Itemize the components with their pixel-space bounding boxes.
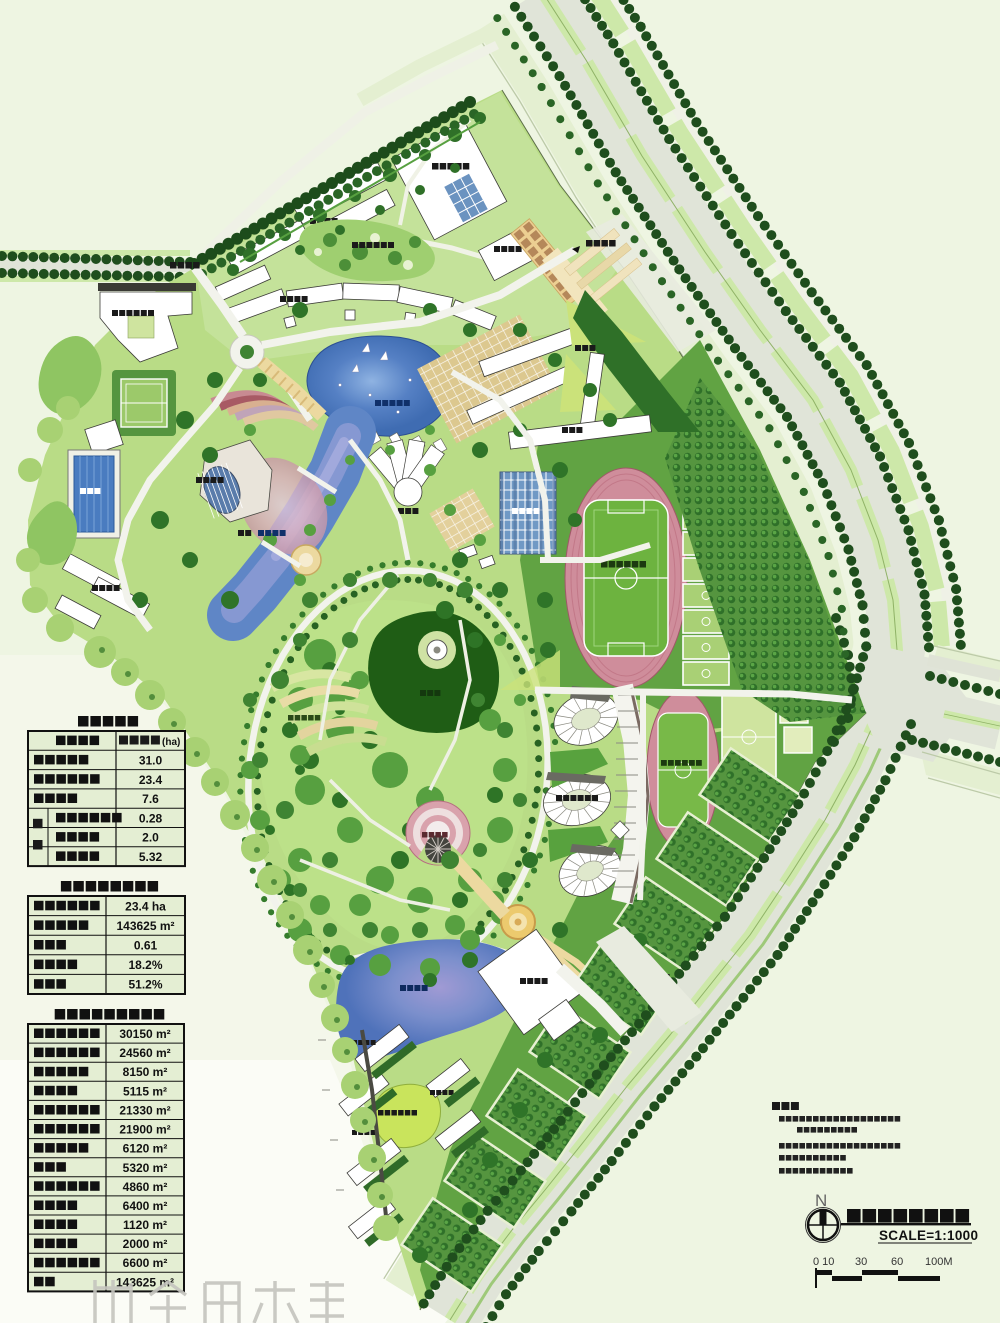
svg-text:1120 m²: 1120 m² [123,1218,167,1232]
svg-text:31.0: 31.0 [139,753,163,767]
svg-text:0.61: 0.61 [134,939,158,953]
svg-text:60: 60 [891,1256,903,1268]
svg-text:8150 m²: 8150 m² [123,1065,168,1079]
svg-text:6120 m²: 6120 m² [123,1142,168,1156]
svg-text:0.28: 0.28 [139,811,163,825]
svg-text:30150 m²: 30150 m² [119,1027,170,1041]
svg-text:100M: 100M [925,1256,953,1268]
svg-text:0 10: 0 10 [813,1256,834,1268]
svg-text:2.0: 2.0 [142,831,159,845]
svg-text:5320 m²: 5320 m² [123,1161,168,1175]
svg-text:51.2%: 51.2% [128,978,162,992]
svg-text:7.6: 7.6 [142,792,159,806]
svg-text:21900 m²: 21900 m² [119,1123,170,1137]
svg-text:5115 m²: 5115 m² [123,1084,167,1098]
svg-text:2000 m²: 2000 m² [123,1237,168,1251]
svg-text:6400 m²: 6400 m² [123,1199,168,1213]
svg-text:5.32: 5.32 [139,850,163,864]
svg-text:4860 m²: 4860 m² [123,1180,168,1194]
svg-text:SCALE=1:1000: SCALE=1:1000 [879,1228,978,1243]
svg-text:30: 30 [855,1256,867,1268]
svg-text:18.2%: 18.2% [128,958,162,972]
svg-text:23.4: 23.4 [139,773,163,787]
svg-text:6600 m²: 6600 m² [123,1256,168,1270]
svg-text:143625 m²: 143625 m² [116,919,174,933]
svg-text:24560 m²: 24560 m² [119,1046,170,1060]
svg-text:23.4 ha: 23.4 ha [125,899,166,913]
svg-text:21330 m²: 21330 m² [119,1104,170,1118]
svg-text:(ha): (ha) [162,737,180,748]
